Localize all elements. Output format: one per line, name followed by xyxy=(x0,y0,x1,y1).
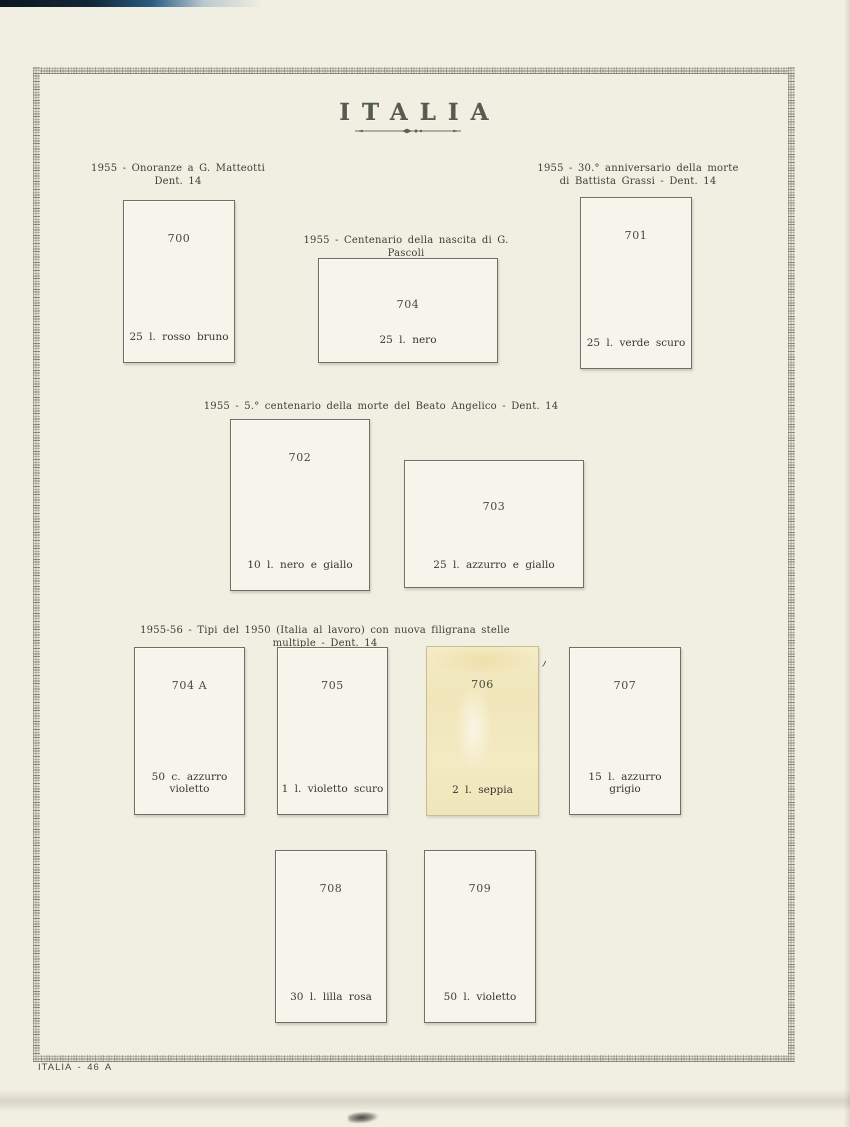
page-title: ITALIA xyxy=(58,99,770,126)
stamp-box-708: 708 30 l. lilla rosa xyxy=(275,850,387,1023)
stamp-caption: 2 l. seppia xyxy=(427,784,538,796)
stamp-box-703: 703 25 l. azzurro e giallo xyxy=(404,460,584,588)
section-heading-grassi: 1955 - 30.° anniversario della morte di … xyxy=(527,163,749,188)
stamp-number: 707 xyxy=(570,679,680,692)
stamp-number: 704 A xyxy=(135,679,244,692)
heading-line: 1955 - Onoranze a G. Matteotti xyxy=(78,163,278,176)
stamp-box-700: 700 25 l. rosso bruno xyxy=(123,200,235,363)
scan-edge-artifact-top xyxy=(0,0,262,7)
heading-line: 1955 - Centenario della nascita di G. Pa… xyxy=(294,235,518,260)
border-frame-left xyxy=(33,67,40,1062)
stamp-number: 701 xyxy=(581,229,691,242)
stray-ink-mark xyxy=(540,659,547,667)
stamp-caption: 50 l. violetto xyxy=(425,991,535,1003)
heading-line: di Battista Grassi - Dent. 14 xyxy=(527,176,749,189)
stamp-box-704a: 704 A 50 c. azzurro violetto xyxy=(134,647,245,815)
stamp-caption: 30 l. lilla rosa xyxy=(276,991,386,1003)
stamp-number: 706 xyxy=(427,678,538,691)
stamp-number: 704 xyxy=(319,298,497,311)
page-bottom-shadow xyxy=(0,1090,850,1110)
stamp-number: 705 xyxy=(278,679,387,692)
section-heading-matteotti: 1955 - Onoranze a G. Matteotti Dent. 14 xyxy=(78,163,278,188)
heading-line: Dent. 14 xyxy=(78,176,278,189)
stamp-caption: 15 l. azzurro grigio xyxy=(570,771,680,795)
stamp-number: 702 xyxy=(231,451,369,464)
stamp-box-705: 705 1 l. violetto scuro xyxy=(277,647,388,815)
stamp-box-707: 707 15 l. azzurro grigio xyxy=(569,647,681,815)
title-divider-ornament xyxy=(353,126,463,136)
border-frame-top xyxy=(33,67,795,74)
heading-line: 1955 - 5.° centenario della morte del Be… xyxy=(180,401,582,414)
stamp-caption: 10 l. nero e giallo xyxy=(231,559,369,571)
stamp-box-706-with-stamp-ghost: 706 2 l. seppia xyxy=(426,646,539,816)
album-page: ITALIA 1955 - Onoranze a G. Matteotti De… xyxy=(0,0,850,1127)
section-heading-beato-angelico: 1955 - 5.° centenario della morte del Be… xyxy=(180,401,582,414)
border-frame-right xyxy=(788,67,795,1062)
border-frame-bottom xyxy=(33,1055,795,1062)
stamp-caption: 25 l. rosso bruno xyxy=(124,331,234,343)
bottom-ink-smudge xyxy=(348,1111,379,1124)
stamp-number: 700 xyxy=(124,232,234,245)
stamp-box-709: 709 50 l. violetto xyxy=(424,850,536,1023)
stamp-box-701: 701 25 l. verde scuro xyxy=(580,197,692,369)
stamp-box-702: 702 10 l. nero e giallo xyxy=(230,419,370,591)
stamp-number: 703 xyxy=(405,500,583,513)
heading-line: 1955 - 30.° anniversario della morte xyxy=(527,163,749,176)
stamp-caption: 25 l. nero xyxy=(319,334,497,346)
stamp-caption: 25 l. azzurro e giallo xyxy=(405,559,583,571)
scan-edge-artifact-right xyxy=(844,0,850,1127)
stamp-caption: 25 l. verde scuro xyxy=(581,337,691,349)
stamp-number: 708 xyxy=(276,882,386,895)
stamp-caption: 1 l. violetto scuro xyxy=(278,783,387,795)
page-footer-label: ITALIA - 46 A xyxy=(38,1062,112,1073)
stamp-caption: 50 c. azzurro violetto xyxy=(135,771,244,795)
stamp-number: 709 xyxy=(425,882,535,895)
stamp-box-704: 704 25 l. nero xyxy=(318,258,498,363)
